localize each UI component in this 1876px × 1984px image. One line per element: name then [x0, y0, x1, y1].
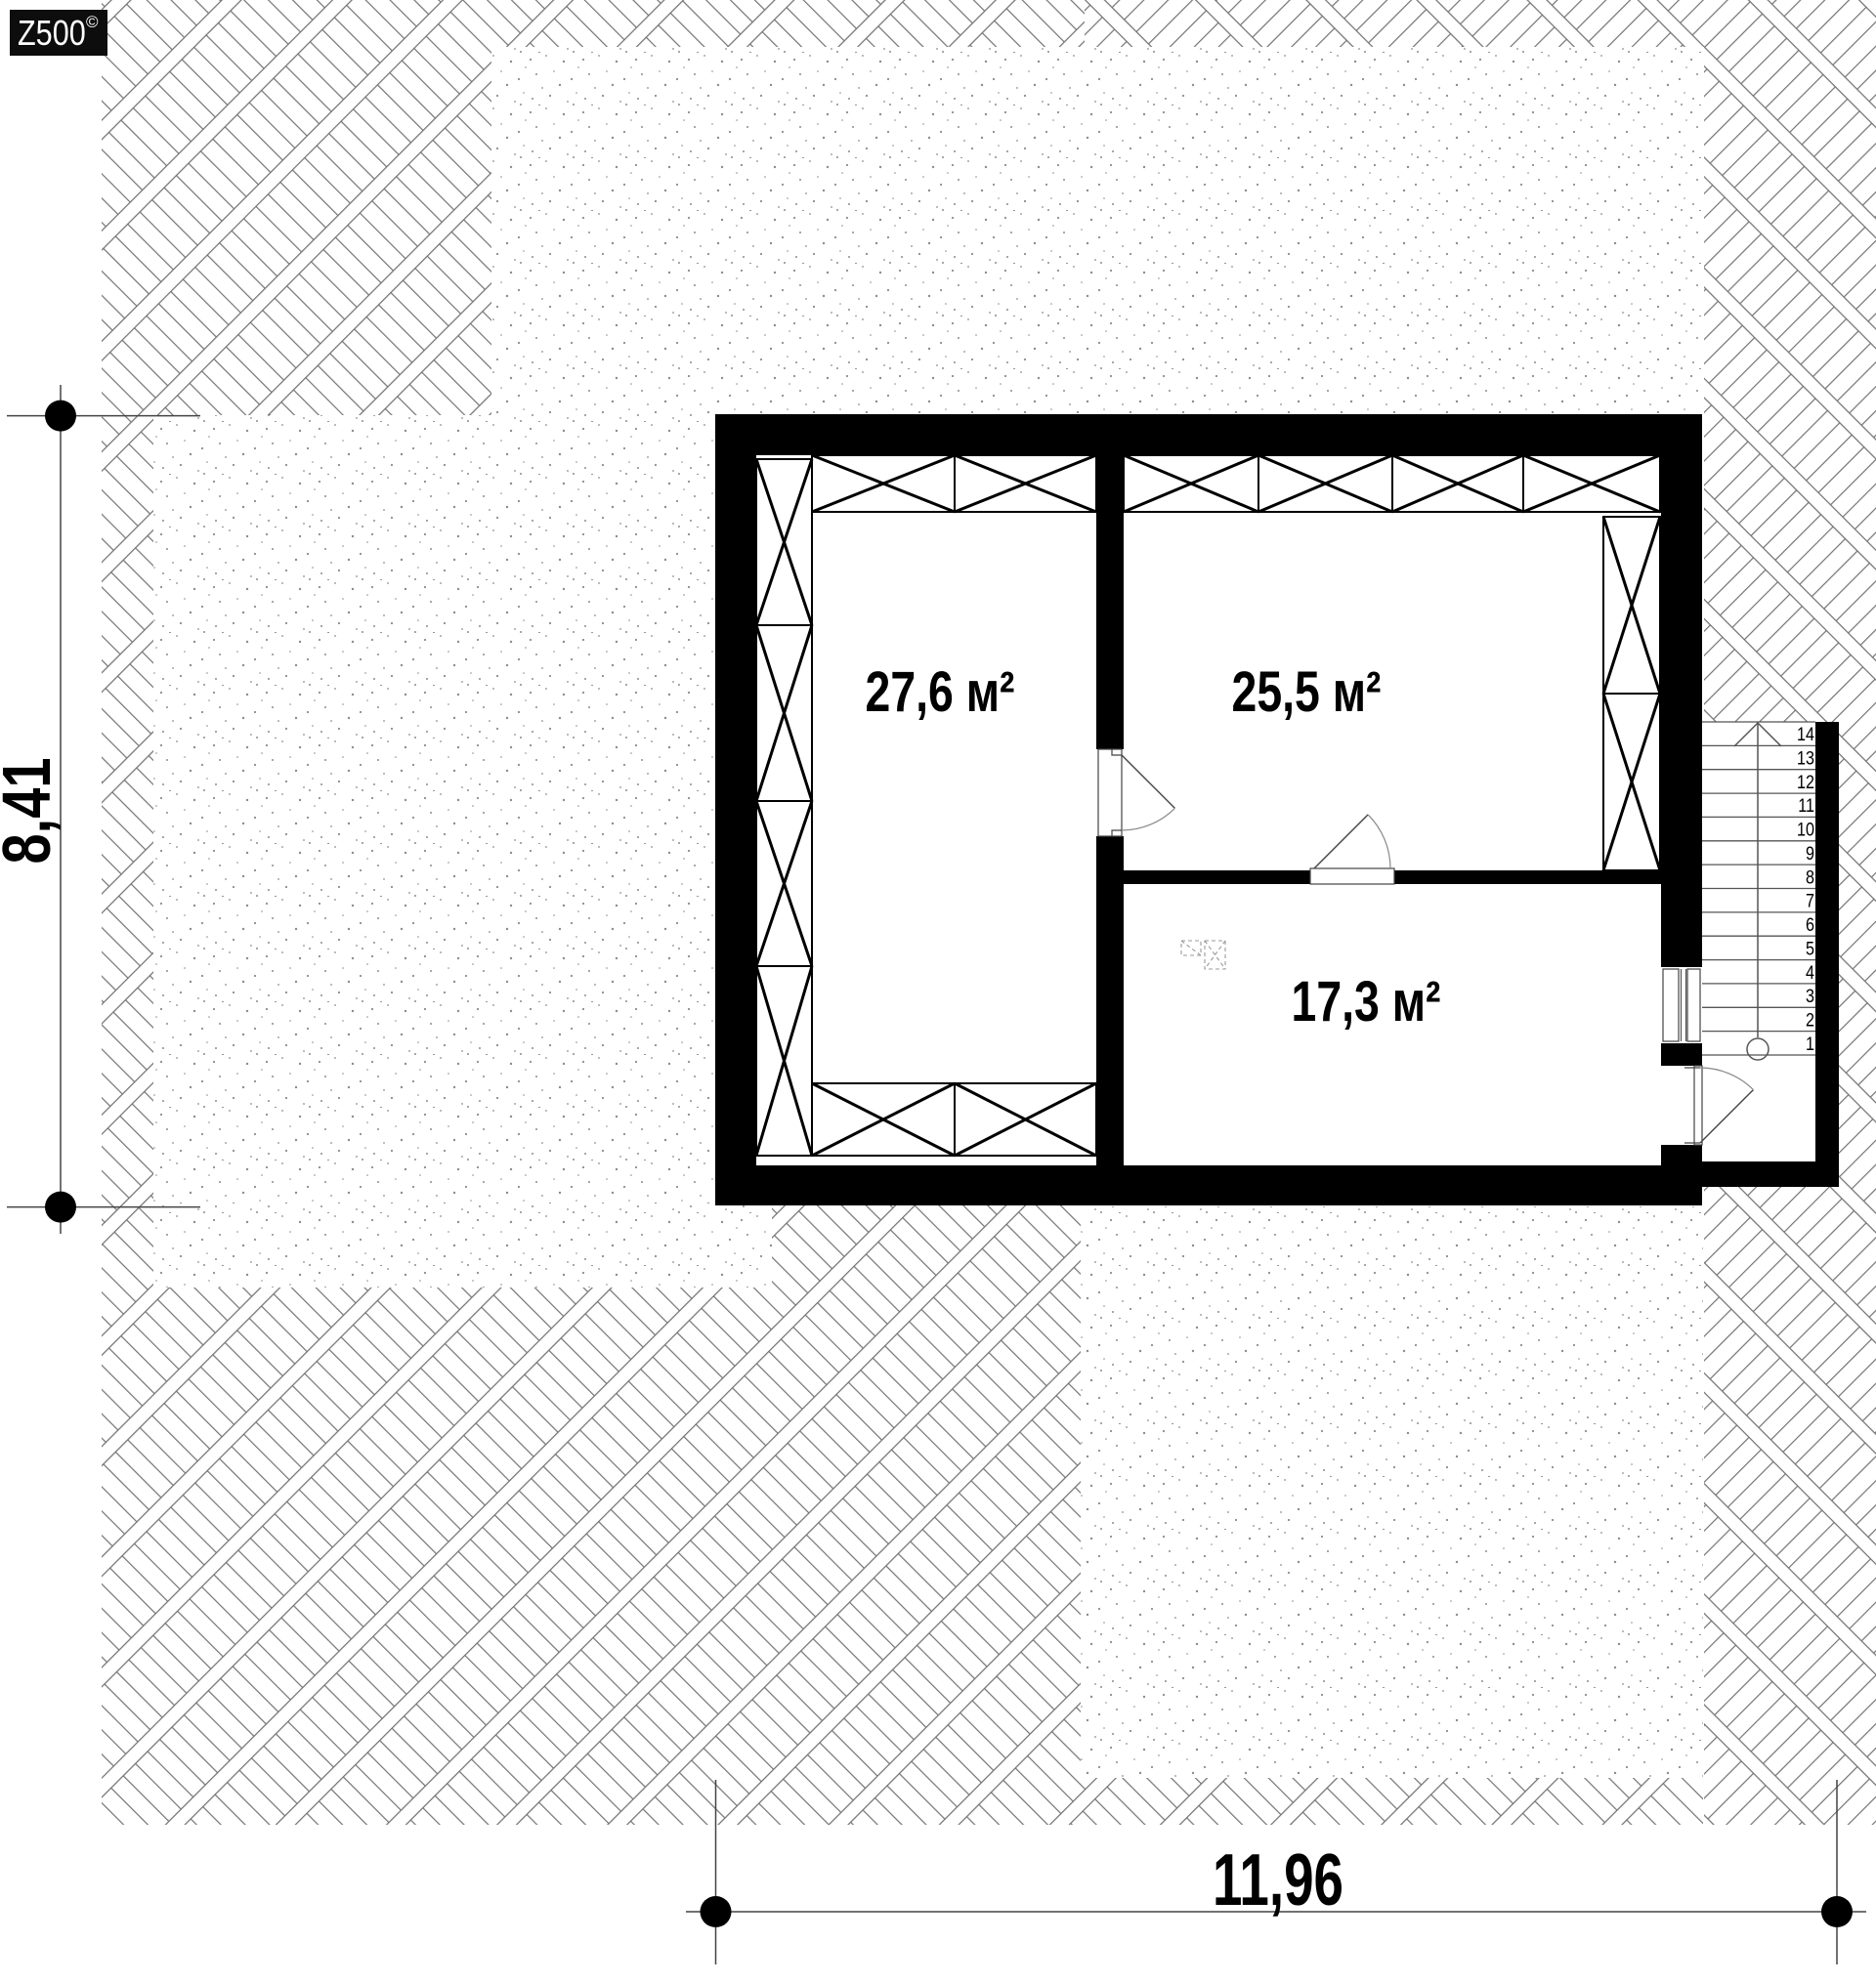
- svg-text:9: 9: [1806, 843, 1814, 865]
- svg-text:4: 4: [1806, 962, 1814, 984]
- svg-text:25,5 м²: 25,5 м²: [1232, 660, 1382, 724]
- svg-text:8,41: 8,41: [0, 758, 64, 865]
- svg-text:12: 12: [1797, 772, 1814, 793]
- svg-text:10: 10: [1797, 819, 1814, 840]
- svg-text:Z500: Z500: [18, 15, 86, 54]
- svg-text:13: 13: [1797, 747, 1814, 769]
- svg-text:17,3 м²: 17,3 м²: [1292, 970, 1441, 1034]
- svg-text:7: 7: [1806, 890, 1814, 911]
- svg-text:11: 11: [1798, 795, 1814, 817]
- svg-text:©: ©: [86, 13, 99, 31]
- svg-text:2: 2: [1806, 1009, 1814, 1031]
- svg-text:8: 8: [1806, 866, 1814, 888]
- svg-text:1: 1: [1806, 1034, 1814, 1055]
- svg-text:5: 5: [1806, 938, 1814, 959]
- svg-text:6: 6: [1806, 914, 1814, 936]
- svg-text:3: 3: [1806, 986, 1814, 1007]
- svg-text:11,96: 11,96: [1213, 1839, 1343, 1921]
- svg-text:27,6 м²: 27,6 м²: [866, 660, 1015, 724]
- svg-text:14: 14: [1797, 724, 1814, 745]
